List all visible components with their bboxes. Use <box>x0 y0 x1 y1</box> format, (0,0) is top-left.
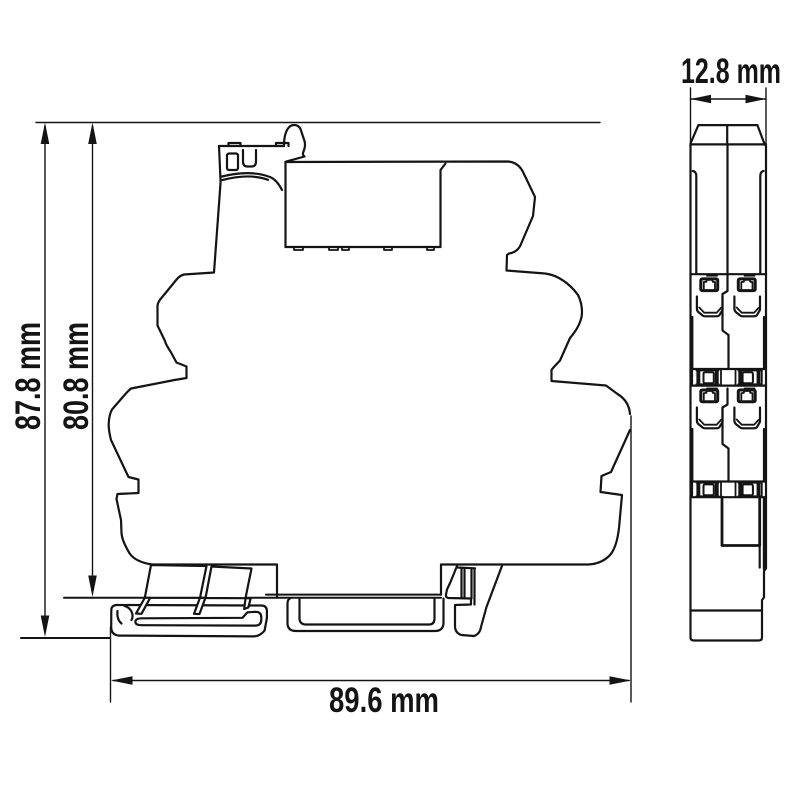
svg-text:12.8 mm: 12.8 mm <box>681 52 781 91</box>
svg-text:80.8 mm: 80.8 mm <box>57 322 96 430</box>
svg-text:89.6 mm: 89.6 mm <box>329 681 439 720</box>
svg-text:87.8 mm: 87.8 mm <box>9 322 48 430</box>
